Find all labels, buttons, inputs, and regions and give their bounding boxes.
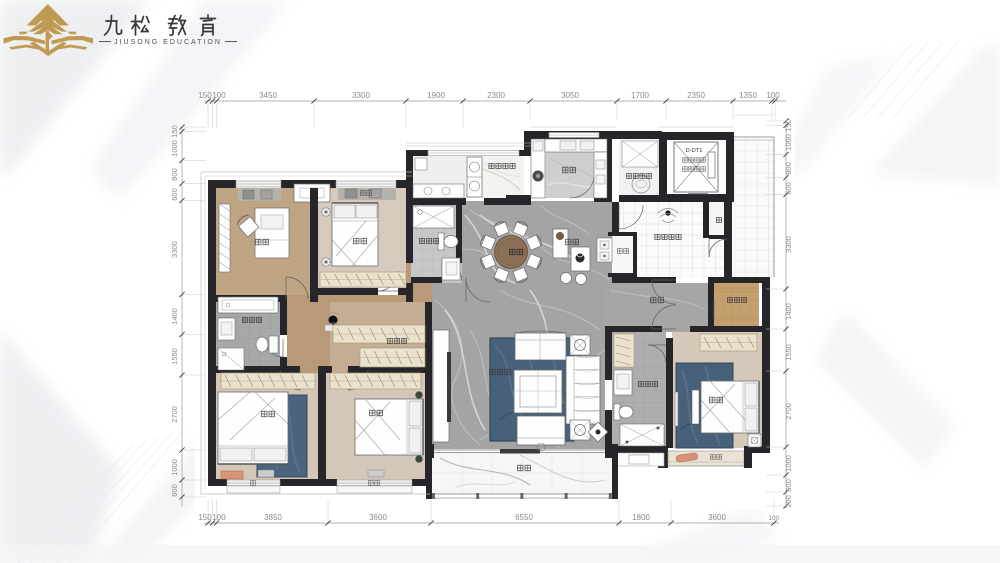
svg-text:3050: 3050 [561,91,579,100]
svg-text:800: 800 [784,162,793,175]
svg-text:800: 800 [170,168,179,181]
svg-text:150: 150 [198,91,212,100]
svg-text:3450: 3450 [259,91,277,100]
svg-text:1000: 1000 [784,455,793,472]
svg-text:1400: 1400 [170,308,179,325]
svg-text:100: 100 [766,91,780,100]
svg-text:100: 100 [769,515,780,522]
svg-text:2700: 2700 [784,403,793,420]
svg-text:3300: 3300 [352,91,370,100]
svg-text:100: 100 [212,513,226,522]
svg-text:JIUSONG EDUCATION: JIUSONG EDUCATION [114,39,222,46]
svg-text:100: 100 [212,91,226,100]
svg-text:1550: 1550 [170,348,179,365]
svg-text:150: 150 [784,119,793,132]
svg-text:150: 150 [198,513,212,522]
svg-text:D-DT1: D-DT1 [685,148,702,154]
svg-text:600: 600 [170,484,179,497]
svg-text:2300: 2300 [487,91,505,100]
svg-text:3600: 3600 [369,513,387,522]
svg-text:2350: 2350 [687,91,705,100]
svg-text:150: 150 [170,125,179,138]
svg-text:3300: 3300 [784,236,793,253]
svg-text:2700: 2700 [170,406,179,423]
svg-text:1800: 1800 [632,513,650,522]
svg-text:200: 200 [784,495,793,508]
svg-text:1400: 1400 [784,303,793,320]
svg-text:600: 600 [784,182,793,195]
svg-text:1000: 1000 [170,459,179,476]
svg-text:6550: 6550 [515,513,533,522]
svg-text:3300: 3300 [170,241,179,258]
svg-text:1000: 1000 [784,134,793,151]
svg-text:1550: 1550 [784,344,793,361]
svg-text:1000: 1000 [170,140,179,157]
svg-text:3600: 3600 [708,513,726,522]
svg-text:1350: 1350 [739,91,757,100]
svg-text:600: 600 [784,479,793,492]
svg-text:600: 600 [170,188,179,201]
svg-text:3850: 3850 [264,513,282,522]
svg-text:1700: 1700 [631,91,649,100]
svg-text:1900: 1900 [427,91,445,100]
